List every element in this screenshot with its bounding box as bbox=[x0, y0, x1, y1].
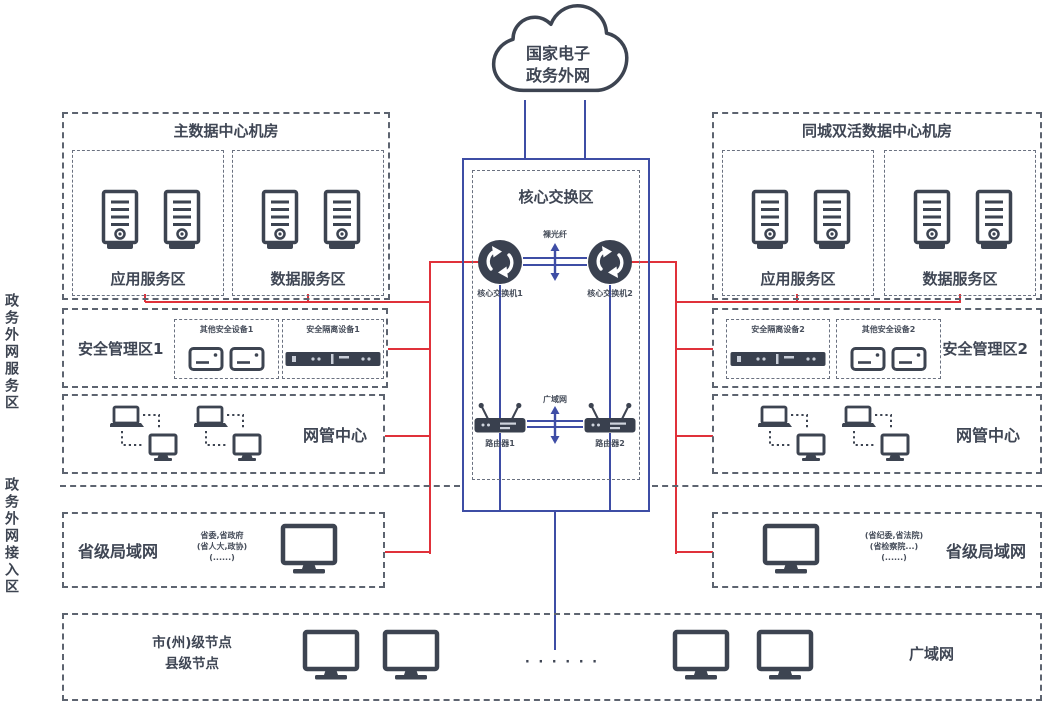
twin-dc-box: 同城双活数据中心机房 应用服务区 数据服务区 bbox=[712, 112, 1042, 300]
core-switch1-icon bbox=[477, 239, 523, 285]
workstation-group-icon bbox=[110, 405, 178, 467]
workstation-group-icon bbox=[758, 405, 826, 467]
main-dc-box: 主数据中心机房 应用服务区 数据服务区 bbox=[62, 112, 390, 300]
fiber-link-label: 裸光纤 bbox=[520, 229, 590, 240]
nms-left-box: 网管中心 bbox=[62, 394, 385, 474]
nms-right-title: 网管中心 bbox=[956, 422, 1020, 446]
lan-left-box: 省级局域网 省委,省政府 (省人大,政协) (......) bbox=[62, 512, 385, 588]
monitor-icon bbox=[672, 629, 730, 681]
county-node-label: 县级节点 bbox=[102, 654, 282, 675]
link-red-left-trunk bbox=[429, 261, 431, 554]
data-zone-label: 数据服务区 bbox=[885, 268, 1035, 289]
security-right-title: 安全管理区2 bbox=[943, 338, 1028, 359]
cloud-label-line1: 国家电子 bbox=[483, 40, 633, 64]
main-dc-title: 主数据中心机房 bbox=[64, 120, 388, 141]
link-red-right-to-lan bbox=[677, 551, 713, 553]
data-zone-label: 数据服务区 bbox=[233, 268, 383, 289]
link-red-left-bus bbox=[145, 301, 431, 303]
lan-left-notes: 省委,省政府 (省人大,政协) (......) bbox=[182, 530, 262, 563]
firewall-device-icon bbox=[891, 346, 927, 372]
core-title: 核心交换区 bbox=[462, 186, 650, 207]
lan-right-box: (省纪委,省法院) (省检察院...) (......) 省级局域网 bbox=[712, 512, 1042, 588]
security-right-appliance-box: 安全隔离设备2 bbox=[726, 319, 830, 379]
nms-left-title: 网管中心 bbox=[303, 422, 367, 446]
link-red-right-trunk bbox=[675, 261, 677, 554]
network-architecture-diagram: 政务外网服务区 政务外网接入区 国家电子 政务外网 主数据中心机房 bbox=[0, 0, 1054, 706]
twin-dc-title: 同城双活数据中心机房 bbox=[714, 120, 1040, 141]
security-left-box: 安全管理区1 其他安全设备1 安全隔离设备1 bbox=[62, 308, 388, 388]
router1-label: 路由器1 bbox=[467, 438, 533, 449]
server-icon bbox=[323, 189, 361, 251]
lan-left-title: 省级局域网 bbox=[78, 538, 158, 562]
lan-right-title: 省级局域网 bbox=[946, 538, 1026, 562]
twin-dc-app-zone: 应用服务区 bbox=[722, 150, 874, 296]
security-right-devices-label: 其他安全设备2 bbox=[837, 324, 940, 335]
core-switch2-label: 核心交换机2 bbox=[577, 288, 643, 299]
side-label-lower: 政务外网接入区 bbox=[1, 477, 21, 596]
link-red-right-bus bbox=[675, 301, 961, 303]
main-dc-app-zone: 应用服务区 bbox=[72, 150, 224, 296]
double-arrow-icon bbox=[549, 406, 561, 444]
monitor-icon bbox=[280, 523, 338, 575]
security-left-title: 安全管理区1 bbox=[78, 338, 163, 359]
monitor-icon bbox=[762, 523, 820, 575]
server-icon bbox=[163, 189, 201, 251]
nms-right-box: 网管中心 bbox=[712, 394, 1042, 474]
region-divider-left bbox=[60, 485, 460, 487]
firewall-device-icon bbox=[188, 346, 224, 372]
security-left-devices-label: 其他安全设备1 bbox=[175, 324, 278, 335]
cloud-link-left bbox=[524, 100, 526, 158]
lan-right-notes: (省纪委,省法院) (省检察院...) (......) bbox=[852, 530, 936, 563]
router2-label: 路由器2 bbox=[577, 438, 643, 449]
wan-link-label: 广域网 bbox=[520, 394, 590, 405]
link-red-right-to-security bbox=[677, 348, 713, 350]
double-arrow-icon bbox=[549, 243, 561, 281]
server-icon bbox=[975, 189, 1013, 251]
security-left-appliance-box: 安全隔离设备1 bbox=[282, 319, 384, 379]
monitor-icon bbox=[302, 629, 360, 681]
region-divider-right bbox=[652, 485, 1042, 487]
link-red-left-to-lan bbox=[385, 551, 430, 553]
link-red-left-to-security bbox=[388, 348, 430, 350]
monitor-icon bbox=[382, 629, 440, 681]
server-icon bbox=[261, 189, 299, 251]
security-right-appliance-label: 安全隔离设备2 bbox=[727, 324, 829, 335]
firewall-device-icon bbox=[850, 346, 886, 372]
router1-icon bbox=[473, 401, 527, 435]
core-switch1-label: 核心交换机1 bbox=[467, 288, 533, 299]
city-node-label: 市(州)级节点 bbox=[102, 633, 282, 654]
server-icon bbox=[101, 189, 139, 251]
router2-icon bbox=[583, 401, 637, 435]
workstation-group-icon bbox=[842, 405, 910, 467]
workstation-group-icon bbox=[194, 405, 262, 467]
server-icon bbox=[751, 189, 789, 251]
wan-band-box: 市(州)级节点 县级节点 · · · · · · 广域网 bbox=[62, 613, 1042, 701]
app-zone-label: 应用服务区 bbox=[723, 268, 873, 289]
rack-appliance-icon bbox=[730, 350, 826, 368]
cloud-label-line2: 政务外网 bbox=[483, 62, 633, 86]
security-left-devices-box: 其他安全设备1 bbox=[174, 319, 279, 379]
main-dc-data-zone: 数据服务区 bbox=[232, 150, 384, 296]
monitor-icon bbox=[756, 629, 814, 681]
wan-title: 广域网 bbox=[909, 643, 954, 664]
wan-node-labels: 市(州)级节点 县级节点 bbox=[102, 633, 282, 675]
server-icon bbox=[813, 189, 851, 251]
wan-ellipsis-dots: · · · · · · bbox=[512, 655, 612, 670]
security-right-devices-box: 其他安全设备2 bbox=[836, 319, 941, 379]
server-icon bbox=[913, 189, 951, 251]
link-red-right-to-nms bbox=[677, 435, 713, 437]
firewall-device-icon bbox=[229, 346, 265, 372]
side-label-upper: 政务外网服务区 bbox=[1, 293, 21, 412]
rack-appliance-icon bbox=[285, 350, 381, 368]
twin-dc-data-zone: 数据服务区 bbox=[884, 150, 1036, 296]
cloud-link-right bbox=[584, 100, 586, 158]
security-left-appliance-label: 安全隔离设备1 bbox=[283, 324, 383, 335]
link-red-left-to-nms bbox=[385, 435, 430, 437]
core-switch2-icon bbox=[587, 239, 633, 285]
security-right-box: 安全隔离设备2 其他安全设备2 安全管理区2 bbox=[712, 308, 1042, 388]
app-zone-label: 应用服务区 bbox=[73, 268, 223, 289]
